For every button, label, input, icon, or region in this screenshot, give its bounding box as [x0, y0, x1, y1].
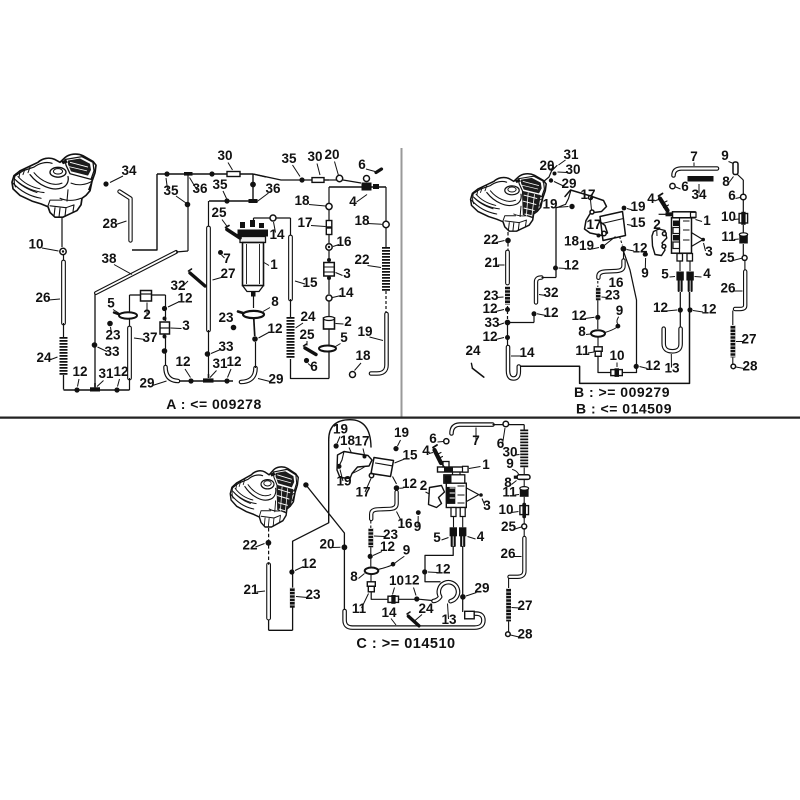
svg-text:8: 8 [271, 294, 279, 309]
svg-text:11: 11 [575, 343, 590, 358]
svg-text:12: 12 [267, 321, 282, 336]
svg-text:4: 4 [422, 443, 430, 458]
svg-text:19: 19 [336, 474, 351, 489]
svg-text:12: 12 [564, 258, 579, 273]
svg-text:12: 12 [402, 476, 417, 491]
svg-text:19: 19 [542, 197, 557, 212]
svg-text:31: 31 [563, 147, 579, 162]
svg-text:16: 16 [336, 234, 352, 249]
svg-text:9: 9 [721, 148, 729, 163]
svg-text:13: 13 [664, 361, 680, 376]
svg-text:17: 17 [355, 485, 370, 500]
svg-text:18: 18 [354, 213, 370, 228]
svg-text:33: 33 [218, 339, 234, 354]
svg-text:22: 22 [483, 232, 498, 247]
svg-text:10: 10 [28, 237, 43, 252]
svg-text:17: 17 [297, 215, 312, 230]
svg-text:12: 12 [380, 539, 395, 554]
svg-text:27: 27 [741, 332, 756, 347]
svg-text:38: 38 [101, 251, 117, 266]
svg-text:28: 28 [102, 216, 118, 231]
svg-text:14: 14 [519, 345, 535, 360]
svg-text:7: 7 [223, 251, 231, 266]
svg-text:3: 3 [705, 244, 713, 259]
svg-text:8: 8 [722, 174, 730, 189]
svg-text:10: 10 [609, 348, 624, 363]
svg-text:3: 3 [343, 266, 351, 281]
svg-text:34: 34 [121, 163, 137, 178]
svg-text:5: 5 [661, 267, 669, 282]
svg-text:11: 11 [721, 229, 736, 244]
svg-text:2: 2 [344, 314, 352, 329]
svg-text:12: 12 [113, 364, 128, 379]
svg-text:4: 4 [477, 529, 485, 544]
svg-text:26: 26 [720, 281, 736, 296]
svg-text:B : <= 014509: B : <= 014509 [576, 401, 672, 417]
svg-text:15: 15 [402, 448, 418, 463]
svg-text:12: 12 [482, 329, 497, 344]
svg-text:37: 37 [142, 330, 157, 345]
svg-text:12: 12 [301, 556, 316, 571]
svg-text:12: 12 [435, 562, 450, 577]
svg-text:14: 14 [269, 227, 285, 242]
svg-text:10: 10 [389, 573, 404, 588]
svg-text:15: 15 [302, 275, 318, 290]
svg-text:12: 12 [175, 354, 190, 369]
svg-text:9: 9 [616, 303, 624, 318]
svg-text:9: 9 [506, 456, 514, 471]
svg-text:36: 36 [192, 181, 208, 196]
svg-text:18: 18 [340, 433, 356, 448]
svg-text:9: 9 [414, 519, 422, 534]
svg-text:33: 33 [484, 315, 500, 330]
svg-text:17: 17 [354, 434, 369, 449]
svg-text:24: 24 [36, 350, 52, 365]
svg-text:C : >= 014510: C : >= 014510 [356, 636, 455, 652]
svg-text:19: 19 [630, 199, 645, 214]
svg-text:8: 8 [578, 324, 586, 339]
svg-text:12: 12 [571, 308, 586, 323]
svg-text:12: 12 [701, 302, 716, 317]
svg-text:3: 3 [483, 498, 491, 513]
svg-text:12: 12 [177, 291, 192, 306]
svg-text:21: 21 [484, 255, 500, 270]
svg-text:23: 23 [218, 310, 234, 325]
svg-text:29: 29 [561, 176, 576, 191]
svg-text:30: 30 [217, 148, 232, 163]
svg-text:27: 27 [220, 266, 235, 281]
svg-text:1: 1 [270, 257, 278, 272]
svg-text:18: 18 [294, 193, 310, 208]
svg-text:24: 24 [465, 343, 481, 358]
svg-text:2: 2 [653, 217, 661, 232]
svg-text:29: 29 [474, 581, 489, 596]
svg-text:26: 26 [500, 546, 516, 561]
svg-text:13: 13 [441, 612, 457, 627]
svg-text:20: 20 [539, 158, 554, 173]
svg-text:12: 12 [482, 301, 497, 316]
svg-text:17: 17 [586, 217, 601, 232]
svg-text:2: 2 [420, 478, 428, 493]
svg-text:4: 4 [647, 191, 655, 206]
svg-text:5: 5 [340, 330, 348, 345]
svg-text:22: 22 [242, 538, 257, 553]
svg-text:29: 29 [139, 376, 154, 391]
svg-text:22: 22 [354, 252, 369, 267]
svg-text:28: 28 [742, 359, 758, 374]
svg-text:32: 32 [543, 285, 558, 300]
svg-text:6: 6 [358, 157, 366, 172]
svg-text:A : <= 009278: A : <= 009278 [166, 396, 262, 412]
svg-text:35: 35 [163, 183, 179, 198]
svg-text:1: 1 [703, 213, 711, 228]
svg-text:24: 24 [300, 309, 316, 324]
svg-text:B : >= 009279: B : >= 009279 [574, 384, 670, 400]
svg-text:24: 24 [418, 601, 434, 616]
svg-text:25: 25 [501, 519, 517, 534]
svg-text:18: 18 [564, 234, 580, 249]
svg-text:14: 14 [381, 605, 397, 620]
svg-text:12: 12 [653, 300, 668, 315]
svg-text:7: 7 [690, 149, 698, 164]
svg-text:28: 28 [517, 627, 533, 642]
svg-text:25: 25 [299, 327, 315, 342]
svg-text:19: 19 [579, 238, 594, 253]
svg-text:1: 1 [482, 457, 490, 472]
svg-text:20: 20 [319, 537, 334, 552]
svg-text:23: 23 [305, 587, 321, 602]
svg-text:12: 12 [404, 573, 419, 588]
svg-text:35: 35 [212, 177, 228, 192]
svg-text:15: 15 [630, 215, 646, 230]
svg-text:5: 5 [433, 530, 441, 545]
svg-text:6: 6 [681, 179, 689, 194]
svg-text:19: 19 [394, 425, 409, 440]
svg-text:3: 3 [182, 318, 190, 333]
svg-text:29: 29 [268, 372, 283, 387]
svg-text:4: 4 [703, 266, 711, 281]
svg-text:23: 23 [105, 328, 121, 343]
svg-text:11: 11 [502, 485, 517, 500]
svg-text:8: 8 [350, 569, 358, 584]
svg-text:5: 5 [107, 296, 115, 311]
svg-text:4: 4 [349, 194, 357, 209]
svg-text:12: 12 [543, 305, 558, 320]
svg-text:21: 21 [243, 582, 259, 597]
svg-text:30: 30 [565, 162, 580, 177]
svg-text:12: 12 [226, 354, 241, 369]
svg-text:30: 30 [307, 149, 322, 164]
svg-text:9: 9 [403, 543, 411, 558]
svg-text:6: 6 [429, 431, 437, 446]
svg-text:18: 18 [355, 348, 371, 363]
svg-text:10: 10 [721, 209, 736, 224]
svg-text:12: 12 [645, 358, 660, 373]
svg-text:23: 23 [605, 288, 621, 303]
svg-text:11: 11 [352, 601, 367, 616]
svg-text:25: 25 [211, 205, 227, 220]
svg-text:26: 26 [35, 290, 51, 305]
svg-text:17: 17 [580, 187, 595, 202]
svg-text:10: 10 [498, 502, 513, 517]
svg-text:35: 35 [281, 151, 297, 166]
svg-text:20: 20 [324, 147, 339, 162]
svg-text:25: 25 [719, 250, 735, 265]
svg-text:31: 31 [98, 366, 114, 381]
svg-text:12: 12 [72, 364, 87, 379]
svg-text:14: 14 [338, 285, 354, 300]
svg-text:6: 6 [728, 188, 736, 203]
svg-text:27: 27 [517, 598, 532, 613]
